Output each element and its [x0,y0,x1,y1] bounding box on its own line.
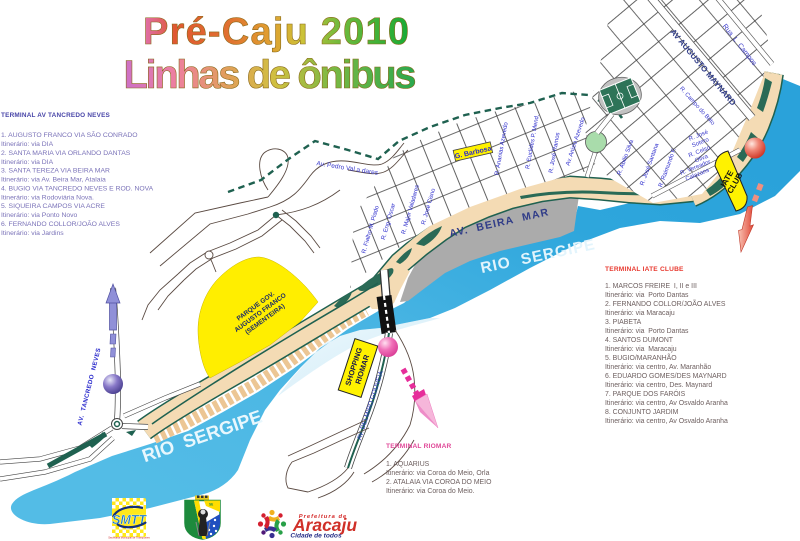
svg-text:Itinerário: via Ponto Novo: Itinerário: via Ponto Novo [1,212,78,219]
svg-text:Itinerário: via Rodoviária Nov: Itinerário: via Rodoviária Nova. [1,195,94,202]
svg-text:Pré-Caju 2010: Pré-Caju 2010 [143,11,409,53]
svg-text:5. SIQUEIRA CAMPOS VIA ACRE: 5. SIQUEIRA CAMPOS VIA ACRE [1,203,105,210]
svg-text:Itinerário: via DIA: Itinerário: via DIA [1,159,54,166]
svg-text:Itinerário: via Porto Dantas: Itinerário: via Porto Dantas [605,328,689,335]
svg-text:Itinerário: via DIA: Itinerário: via DIA [1,141,54,148]
svg-text:1. AUGUSTO FRANCO VIA SÃO CONR: 1. AUGUSTO FRANCO VIA SÃO CONRADO [1,130,138,139]
svg-text:2. FERNANDO COLLOR/JOÃO ALVES: 2. FERNANDO COLLOR/JOÃO ALVES [605,299,726,308]
svg-text:2. SANTA MARIA VIA ORLANDO DAN: 2. SANTA MARIA VIA ORLANDO DANTAS [1,150,131,157]
svg-text:4. SANTOS DUMONT: 4. SANTOS DUMONT [605,337,674,344]
svg-text:TERMINAL RIOMAR: TERMINAL RIOMAR [386,443,452,450]
svg-text:Itinerário: via Maracaju: Itinerário: via Maracaju [605,346,677,353]
svg-text:Itinerário: via Jardins: Itinerário: via Jardins [1,230,64,237]
svg-text:Itinerário: via Porto Dantas: Itinerário: via Porto Dantas [605,292,689,299]
svg-text:8. CONJUNTO JARDIM: 8. CONJUNTO JARDIM [605,409,679,416]
svg-text:2. ATALAIA VIA COROA DO MEIO: 2. ATALAIA VIA COROA DO MEIO [386,479,492,486]
svg-text:Itinerário: via Av. Beira Mar,: Itinerário: via Av. Beira Mar, Atalaia [1,177,106,184]
svg-text:Secretaria Municipal de Transp: Secretaria Municipal de Transportes [108,536,150,540]
svg-text:Itinerário: via Coroa do Meio.: Itinerário: via Coroa do Meio. [386,488,475,495]
svg-text:Linhas de ônibus: Linhas de ônibus [124,53,417,97]
svg-text:3. SANTA TEREZA VIA BEIRA MAR: 3. SANTA TEREZA VIA BEIRA MAR [1,168,110,175]
svg-text:Itinerário: via Maracaju: Itinerário: via Maracaju [605,310,675,317]
svg-text:Cidade de todos: Cidade de todos [290,533,342,540]
svg-text:TERMINAL IATE CLUBE: TERMINAL IATE CLUBE [605,266,684,273]
svg-text:Itinerário: via centro, Av Osv: Itinerário: via centro, Av Osvaldo Aranh… [605,400,728,407]
svg-text:3. PIABETA: 3. PIABETA [605,319,642,326]
svg-text:TERMINAL AV TANCREDO NEVES: TERMINAL AV TANCREDO NEVES [1,112,111,119]
svg-text:5. BUGIO/MARANHÃO: 5. BUGIO/MARANHÃO [605,353,677,362]
svg-text:Itinerário: via centro, Av. Ma: Itinerário: via centro, Av. Maranhão [605,364,711,371]
svg-text:7. PARQUE DOS FARÓIS: 7. PARQUE DOS FARÓIS [605,389,686,398]
svg-text:6. FERNANDO COLLOR/JOÃO ALVES: 6. FERNANDO COLLOR/JOÃO ALVES [1,219,120,228]
svg-text:6. EDUARDO GOMES/DES MAYNARD: 6. EDUARDO GOMES/DES MAYNARD [605,373,727,380]
svg-text:Itinerário: via centro, Des. M: Itinerário: via centro, Des. Maynard [605,382,712,389]
svg-text:1. MARCOS FREIRE I, II e III: 1. MARCOS FREIRE I, II e III [605,283,697,290]
svg-text:1. AQUARIUS: 1. AQUARIUS [386,461,430,468]
svg-text:Itinerário: via centro, Av Osv: Itinerário: via centro, Av Osvaldo Aranh… [605,418,728,425]
svg-text:4. BUGIO VIA TANCREDO NEVES E: 4. BUGIO VIA TANCREDO NEVES E ROD. NOVA [1,186,154,193]
svg-text:Itinerário: via Coroa do Meio,: Itinerário: via Coroa do Meio, Orla [386,470,490,477]
svg-text:SE: SE [209,503,213,507]
